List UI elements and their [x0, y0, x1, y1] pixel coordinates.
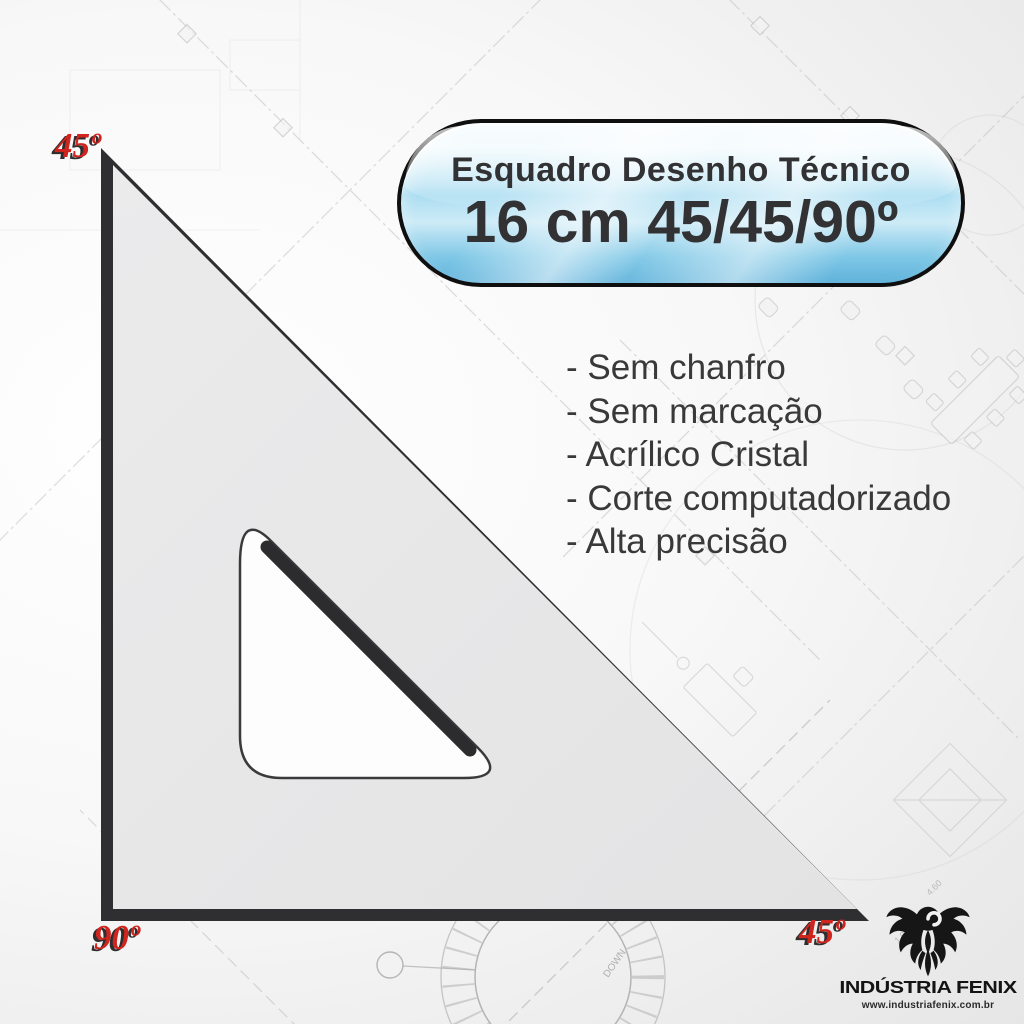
- angle-label-top: 45º: [55, 126, 101, 166]
- feature-item: - Sem marcação: [566, 390, 951, 434]
- brand-website: www.industriafenix.com.br: [835, 1000, 1021, 1011]
- brand-name: INDÚSTRIA FENIX: [833, 978, 1023, 998]
- feature-item: - Corte computadorizado: [566, 477, 951, 521]
- feature-item: - Acrílico Cristal: [566, 433, 951, 477]
- angle-label-bottom-left: 90º: [94, 918, 140, 958]
- product-size-spec: 16 cm 45/45/90º: [464, 192, 899, 254]
- poster: DOWN 4.60 1.90 Esquadro Desenho Técnico …: [0, 0, 1024, 1024]
- feature-item: - Alta precisão: [566, 520, 951, 564]
- brand-block: INDÚSTRIA FENIX www.industriafenix.com.b…: [835, 896, 1021, 1011]
- feature-item: - Sem chanfro: [566, 346, 951, 390]
- product-badge: Esquadro Desenho Técnico 16 cm 45/45/90º: [397, 119, 965, 287]
- product-title: Esquadro Desenho Técnico: [451, 152, 911, 189]
- feature-list: - Sem chanfro - Sem marcação - Acrílico …: [566, 346, 951, 564]
- phoenix-icon: [880, 896, 976, 980]
